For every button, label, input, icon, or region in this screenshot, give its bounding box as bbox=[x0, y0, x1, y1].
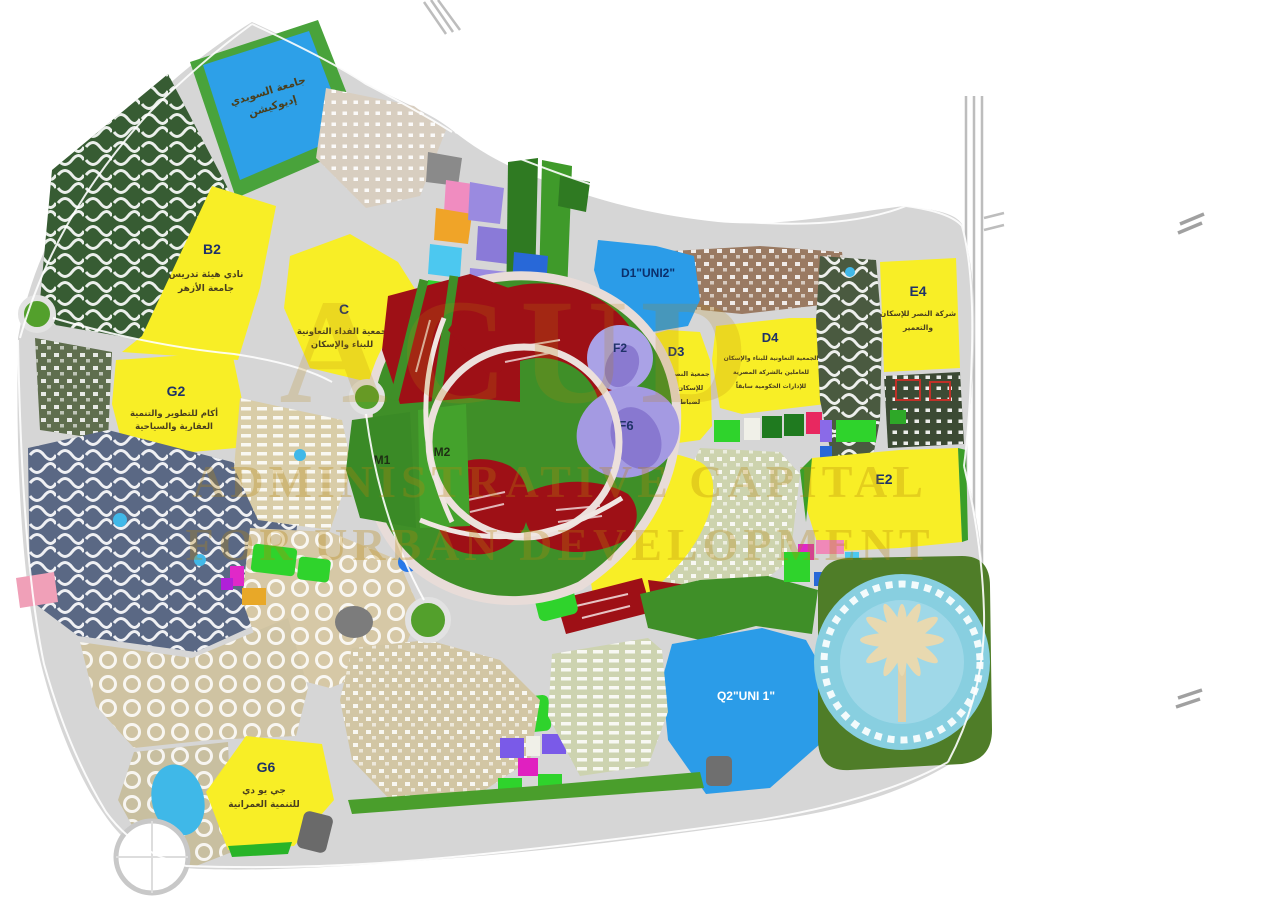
zone-b2-desc2: جامعة الأزهر bbox=[177, 282, 234, 294]
parcel-purple bbox=[476, 226, 512, 264]
parcel-green bbox=[836, 420, 876, 442]
roundabout-southwest bbox=[116, 821, 188, 893]
zone-e4-code: E4 bbox=[909, 283, 926, 299]
zone-west-village bbox=[35, 338, 112, 440]
parcel-gold bbox=[242, 588, 266, 605]
parcel-purple bbox=[820, 420, 832, 442]
parcel-white bbox=[526, 736, 540, 756]
parcel-purple bbox=[468, 182, 504, 224]
west-village-texture bbox=[35, 338, 112, 440]
master-plan-map: جامعة السويدي إديوكيشن B2 نادي هيئة تدري… bbox=[0, 0, 1280, 905]
zone-e4: E4 شركة النصر للإسكان والتعمير bbox=[880, 258, 960, 372]
zone-grid-residential-east bbox=[884, 372, 964, 448]
zone-q2-code: Q2"UNI 1" bbox=[717, 689, 775, 703]
roundabout-center-south bbox=[408, 600, 448, 640]
parcel-purple bbox=[500, 738, 524, 758]
zone-g2-code: G2 bbox=[167, 383, 186, 399]
roundabout-west bbox=[21, 298, 53, 330]
watermark-brand: ACUD bbox=[279, 269, 760, 435]
plaza-gray bbox=[335, 606, 373, 638]
parcel-darkgreen bbox=[762, 416, 782, 438]
pool bbox=[845, 267, 855, 277]
zone-g2-desc1: أكام للتطوير والتنمية bbox=[130, 407, 218, 419]
zone-g6-desc2: للتنمية العمرانية bbox=[228, 800, 299, 810]
parcel-gray-southeast bbox=[706, 756, 732, 786]
zone-e4-desc2: والتعمير bbox=[902, 323, 933, 332]
grid-green-patch bbox=[890, 410, 906, 424]
zone-palm-island bbox=[814, 556, 992, 770]
parcel-orange bbox=[434, 208, 472, 244]
zone-d4-code: D4 bbox=[762, 330, 779, 345]
parcel-magenta bbox=[518, 758, 538, 776]
parcel-red bbox=[806, 412, 822, 434]
parcel-pink-west bbox=[16, 572, 58, 608]
palm-frond bbox=[896, 604, 908, 676]
watermark-line2: FOR URBAN DEVELOPMENT bbox=[185, 519, 934, 570]
zone-e4-desc1: شركة النصر للإسكان bbox=[880, 309, 956, 318]
zone-g2-desc2: العقارية والسياحية bbox=[135, 422, 213, 432]
map-canvas: جامعة السويدي إديوكيشن B2 نادي هيئة تدري… bbox=[0, 0, 1280, 905]
zone-g6-code: G6 bbox=[257, 759, 276, 775]
zone-b2-desc1: نادي هيئة تدريس bbox=[169, 270, 244, 280]
parcel-darkgreen bbox=[784, 414, 804, 436]
zone-g6-desc1: جي يو دي bbox=[242, 786, 286, 796]
zone-b2-code: B2 bbox=[203, 241, 221, 257]
parcel-gray bbox=[426, 152, 462, 186]
watermark-line1: ADMINISTRATIVE CAPITAL bbox=[192, 456, 928, 507]
parcel-purple bbox=[221, 578, 233, 590]
parcel-darkgreen bbox=[558, 176, 590, 212]
pool bbox=[113, 513, 127, 527]
